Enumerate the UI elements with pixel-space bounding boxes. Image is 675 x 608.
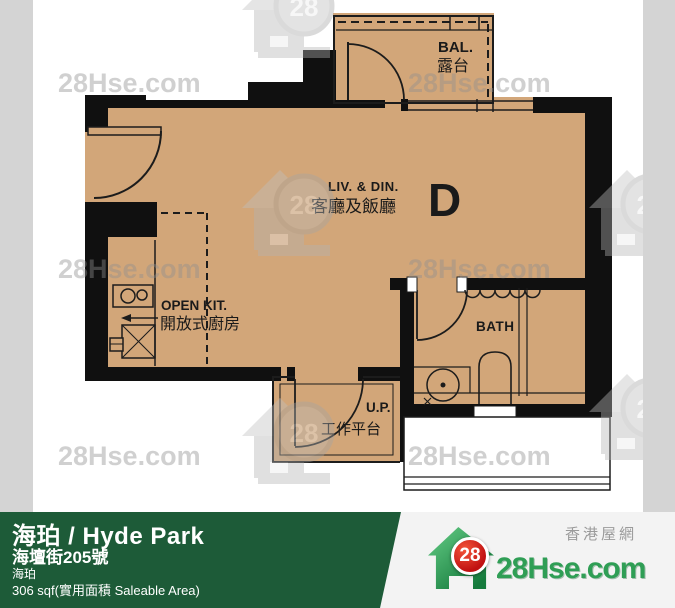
shower-drain-dot: [441, 383, 446, 388]
watermark-text: 28Hse.com: [58, 68, 201, 98]
wall-tick-window: [401, 99, 408, 111]
left-gray-strip: [0, 0, 33, 512]
entry-door-leaf: [88, 127, 161, 135]
watermark-text: 28Hse.com: [408, 254, 551, 284]
site-logo-tagline: 香港屋網: [565, 523, 637, 544]
unit-letter: D: [428, 174, 461, 226]
site-logo-text: 28Hse.com: [496, 552, 645, 586]
wall-bottom-mid: [367, 367, 400, 381]
kitchen-label-zh: 開放式廚房: [160, 314, 240, 333]
site-logo-badge: 28: [451, 537, 489, 575]
wall-right: [585, 97, 612, 417]
wall-balcony-column: [303, 50, 336, 108]
living-label-en: LIV. & DIN.: [328, 179, 399, 194]
footer-bar: 海珀 / Hyde Park 海壇街205號 海珀 306 sqf(實用面積 S…: [0, 512, 675, 608]
saleable-area: 306 sqf(實用面積 Saleable Area): [12, 580, 200, 599]
wall-up-jamb-left: [287, 367, 295, 381]
wall-bottom-left: [85, 367, 281, 381]
balcony-label-en: BAL.: [438, 39, 473, 56]
watermark-text: 28Hse.com: [58, 254, 201, 284]
up-label-en: U.P.: [366, 400, 391, 415]
footer-green-panel: 海珀 / Hyde Park 海壇街205號 海珀 306 sqf(實用面積 S…: [0, 512, 404, 608]
watermark-logo: 28: [242, 0, 332, 58]
watermark-badge: 28: [290, 0, 319, 22]
watermark-text: 28Hse.com: [58, 441, 201, 471]
wall-up-jamb-right: [358, 367, 367, 381]
floorplan-image: BAL. 露台 LIV. & DIN. 客廳及飯廳 D OPEN KIT. 開放…: [0, 0, 675, 512]
watermark-text: 28Hse.com: [408, 441, 551, 471]
watermark-text: 28Hse.com: [408, 68, 551, 98]
kitchen-label-en: OPEN KIT.: [161, 298, 227, 313]
floorplan-page: BAL. 露台 LIV. & DIN. 客廳及飯廳 D OPEN KIT. 開放…: [0, 0, 675, 608]
house-door-icon: [449, 576, 473, 589]
watermark-badge: 28: [290, 418, 319, 448]
watermark-badge: 28: [290, 190, 319, 220]
right-gray-strip: [643, 0, 675, 512]
floor-bath: [400, 278, 585, 417]
wall-entry-block: [85, 202, 157, 237]
watermark-logo: 28: [242, 398, 332, 484]
bath-label: BATH: [476, 319, 515, 334]
wall-top-thin: [85, 100, 255, 108]
